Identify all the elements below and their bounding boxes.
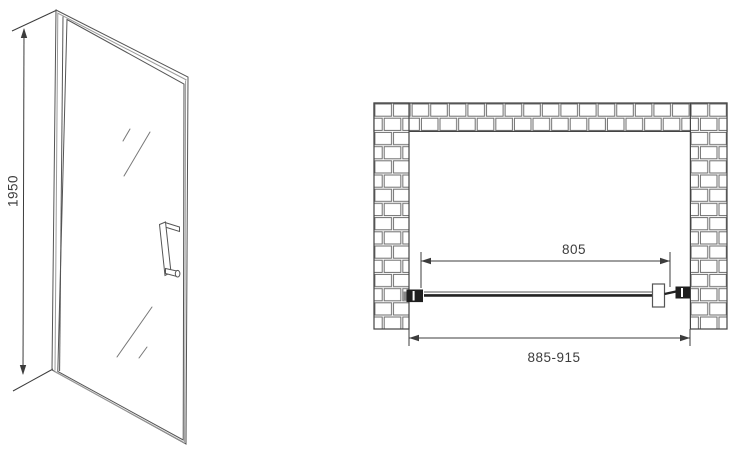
door-frame-offset-line (55, 13, 187, 370)
installation-width-dimension: 885-915 (409, 329, 690, 365)
wall-bracket-slit (681, 288, 683, 297)
wall-right-column (690, 103, 727, 329)
door-top-assembly (404, 284, 691, 307)
arrowhead-right-icon (660, 258, 670, 264)
height-extension-line-top (12, 10, 57, 31)
hinge-wall-tab (404, 292, 408, 301)
hinge-slit (413, 291, 415, 301)
hinge-body (407, 290, 424, 303)
reflection-stroke (139, 347, 147, 358)
height-extension-line-bottom (13, 369, 53, 391)
glass-reflections (117, 129, 152, 358)
magnet-profile-body (653, 284, 665, 307)
wall-top-lintel (374, 103, 727, 131)
arrowhead-down-icon (20, 365, 26, 375)
height-dimension: 1950 (6, 10, 58, 391)
technical-drawing: 1950 (0, 0, 734, 454)
glass-width-dimension: 805 (421, 242, 670, 288)
arrowhead-right-icon (680, 335, 690, 341)
door-frame-right-offset-line (185, 81, 186, 443)
door-handle (160, 222, 180, 277)
arrowhead-left-icon (409, 335, 419, 341)
door-plan-view: 805 885-915 (374, 103, 727, 365)
handle-bar (160, 222, 172, 276)
glass-width-label: 805 (562, 242, 586, 257)
reflection-stroke (123, 129, 130, 141)
door-front-view: 1950 (6, 10, 189, 444)
arrowhead-up-icon (21, 28, 27, 38)
height-dimension-label: 1950 (6, 175, 21, 207)
magnet-closure-profile (653, 284, 691, 307)
installation-width-label: 885-915 (527, 350, 580, 365)
height-dimension-line (23, 29, 24, 374)
handle-top-stub (165, 223, 180, 232)
door-frame-sill-line (55, 372, 186, 444)
technical-drawing-canvas: 1950 (0, 0, 734, 454)
arrowhead-left-icon (421, 258, 431, 264)
magnet-link (665, 292, 677, 295)
reflection-stroke (117, 307, 152, 357)
reflection-stroke (124, 132, 150, 176)
handle-stub-cap (175, 270, 180, 277)
